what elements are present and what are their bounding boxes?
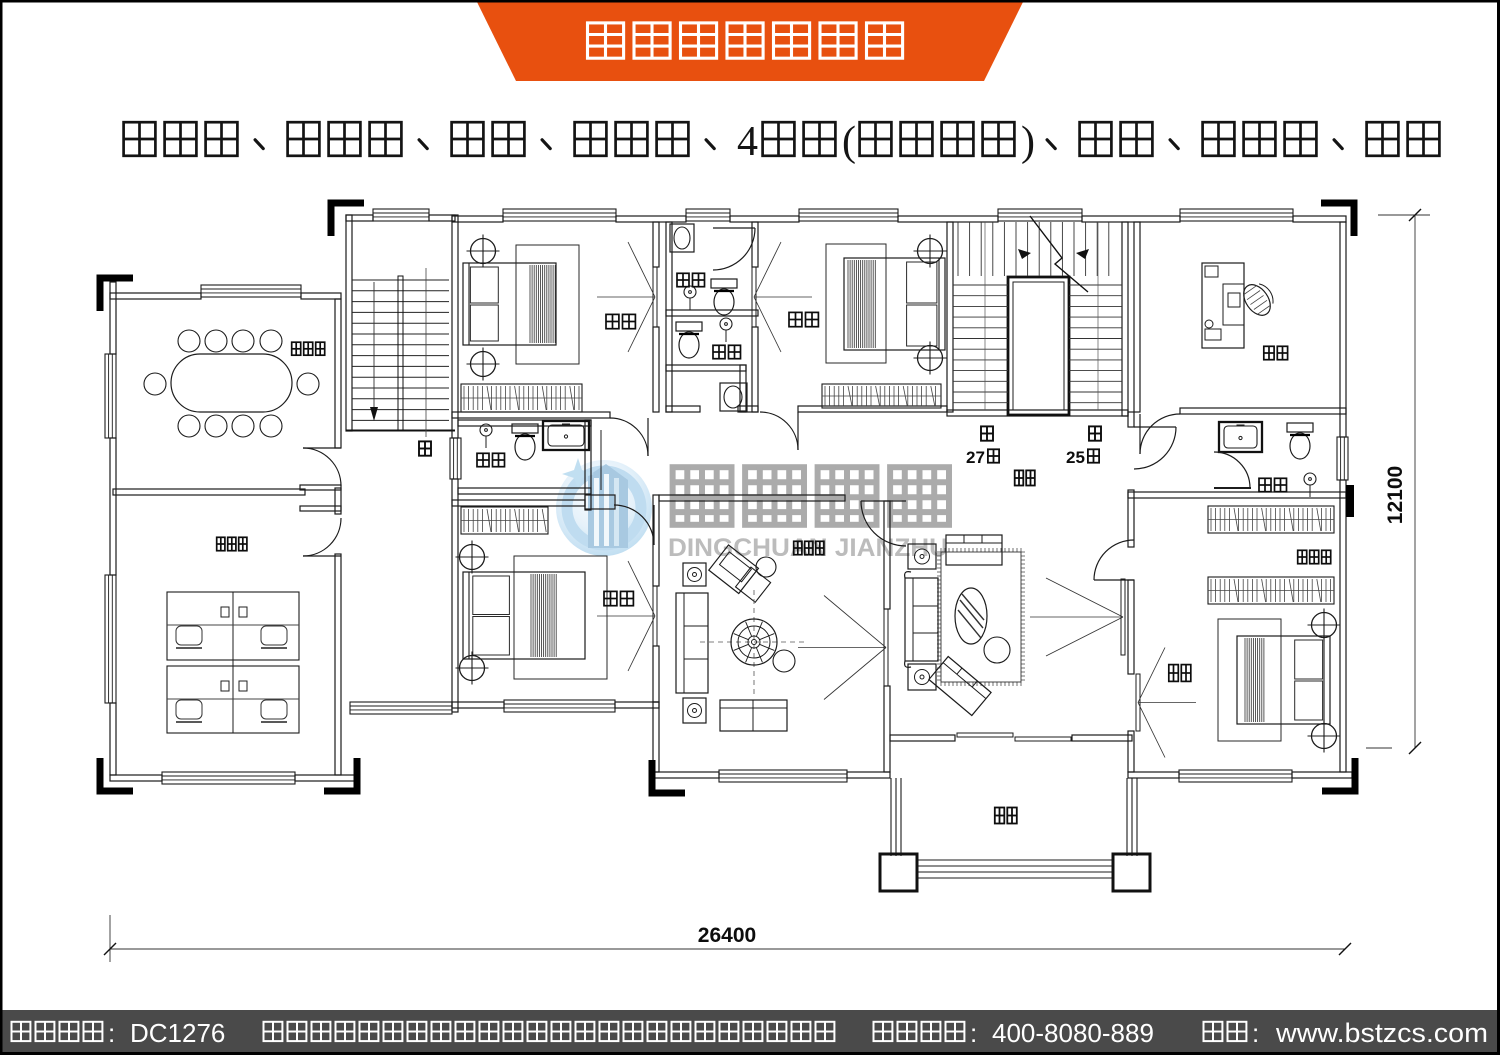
svg-text:26400: 26400 xyxy=(698,924,756,947)
svg-text:DC1276: DC1276 xyxy=(130,1018,225,1048)
svg-text:400-8080-889: 400-8080-889 xyxy=(992,1018,1154,1048)
svg-text:25: 25 xyxy=(1066,448,1085,467)
svg-text:www.bstzcs.com: www.bstzcs.com xyxy=(1275,1018,1488,1048)
svg-text:): ) xyxy=(1021,119,1035,165)
svg-text::: : xyxy=(1252,1018,1259,1048)
svg-text::: : xyxy=(970,1018,977,1048)
svg-text::: : xyxy=(108,1018,115,1048)
svg-text:4: 4 xyxy=(737,119,758,165)
svg-text:12100: 12100 xyxy=(1384,466,1407,524)
svg-text:(: ( xyxy=(842,119,856,165)
svg-text:27: 27 xyxy=(966,448,985,467)
